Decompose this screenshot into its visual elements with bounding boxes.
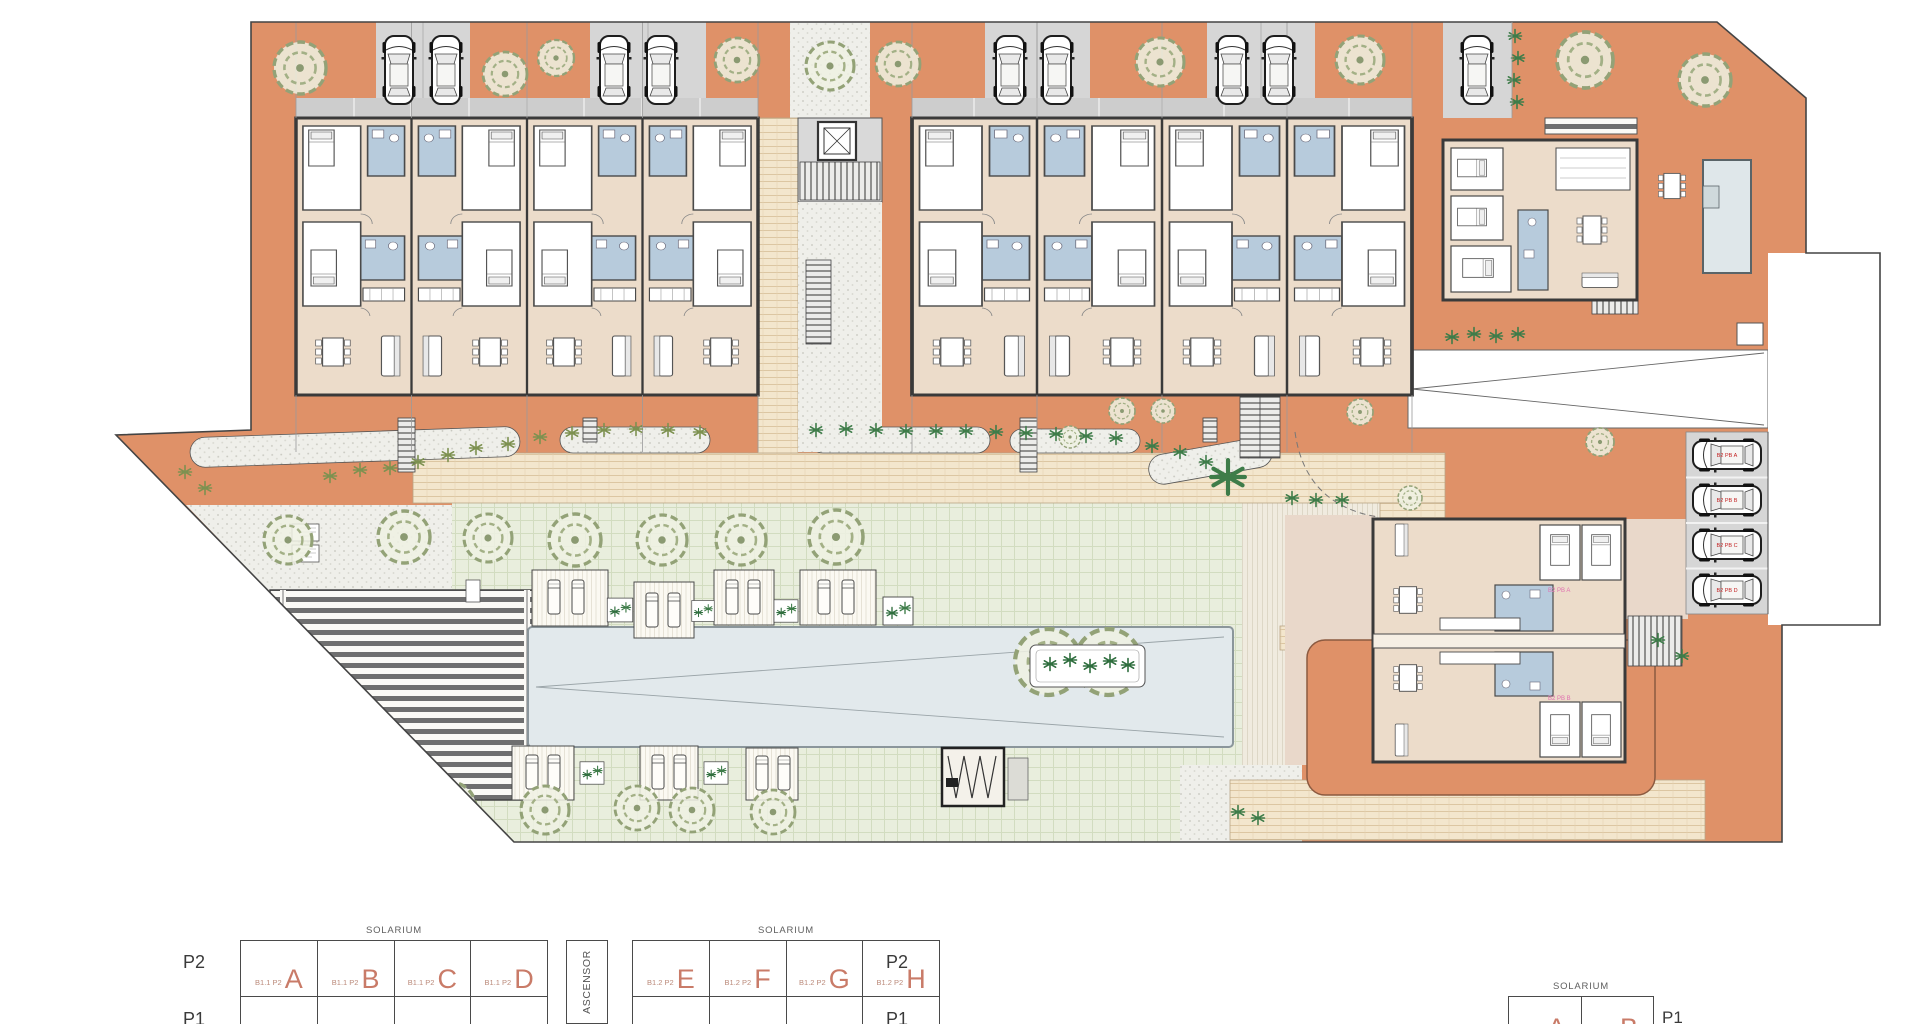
building-b2: B2 PB A B2 PB B	[1373, 519, 1625, 762]
unit-cell: B1.1 P2B	[317, 941, 394, 996]
car-icon	[1262, 36, 1297, 104]
car-icon	[429, 36, 464, 104]
unit-cell: B1.1 P2C	[394, 941, 471, 996]
site-plan-drawing: B2 PB A B2 PB B	[0, 0, 1920, 1024]
parking-stall-label: B2 PB D	[1716, 588, 1737, 594]
unit-schedule-b1-1: SOLARIUM B1.1 P2A B1.1 P2B B1.1 P2C B1.1…	[240, 940, 548, 1024]
parking-stall-label: B2 PB C	[1716, 543, 1737, 549]
garage-ramp	[1408, 350, 1768, 428]
unit-tag: B2 PB A	[1548, 588, 1570, 594]
roadside-strip	[1768, 253, 1880, 625]
unit-cell: B1.1 P1A	[241, 997, 317, 1024]
stair-lift-core	[798, 118, 882, 452]
unit-cell: B2 P1A	[1509, 997, 1581, 1024]
ascensor-label: ASCENSOR	[581, 950, 593, 1014]
unit-cell: B1.2 P1E	[633, 997, 709, 1024]
car-icon	[597, 36, 632, 104]
unit-tag: B2 PB B	[1548, 696, 1571, 702]
unit-cell: B1.2 P1G	[786, 997, 863, 1024]
car-icon	[1460, 36, 1495, 104]
schedule-row-p2: B1.1 P2A B1.1 P2B B1.1 P2C B1.1 P2D	[240, 940, 548, 997]
schedule-row-p2: B1.2 P2E B1.2 P2F B1.2 P2G B1.2 P2H	[632, 940, 940, 997]
floor-label-p2-left: P2	[183, 952, 205, 973]
unit-cell: B1.2 P1H	[862, 997, 939, 1024]
apartment-block-b1-1	[296, 118, 758, 395]
floor-label-p1-mini: P1	[1662, 1008, 1683, 1024]
car-icon	[382, 36, 417, 104]
solarium-label: SOLARIUM	[240, 925, 548, 936]
car-icon	[644, 36, 679, 104]
parking-stall-label: B2 PB B	[1717, 498, 1738, 504]
parking-stall-label: B2 PB A	[1717, 453, 1738, 459]
apartment-block-b1-2	[912, 118, 1412, 395]
unit-cell: B1.2 P2G	[786, 941, 863, 996]
unit-cell: B1.2 P2E	[633, 941, 709, 996]
unit-cell: B1.1 P1B	[317, 997, 394, 1024]
schedule-row-p1: B2 P1A B2 P1B	[1508, 996, 1654, 1024]
schedule-row-p1: B1.1 P1A B1.1 P1B B1.1 P1C B1.1 P1D	[240, 997, 548, 1024]
unit-cell: B1.2 P2F	[709, 941, 786, 996]
unit-cell: B1.1 P1C	[394, 997, 471, 1024]
elevator-schedule-box: ASCENSOR	[566, 940, 608, 1024]
floor-label-p1-left: P1	[183, 1009, 205, 1024]
solarium-label: SOLARIUM	[1508, 981, 1654, 992]
unit-cell: B2 P1B	[1581, 997, 1654, 1024]
unit-cell: B1.1 P1D	[470, 997, 547, 1024]
schedule-row-p1: B1.2 P1E B1.2 P1F B1.2 P1G B1.2 P1H	[632, 997, 940, 1024]
pergola	[270, 590, 540, 800]
car-icon	[1040, 36, 1075, 104]
site-plan-page: B2 PB A B2 PB B	[0, 0, 1920, 1024]
unit-schedule-b2: SOLARIUM B2 P1A B2 P1B	[1508, 996, 1654, 1024]
unit-cell: B1.1 P2D	[470, 941, 547, 996]
solarium-label: SOLARIUM	[632, 925, 940, 936]
unit-schedule-b1-2: SOLARIUM B1.2 P2E B1.2 P2F B1.2 P2G B1.2…	[632, 940, 940, 1024]
unit-cell: B1.2 P1F	[709, 997, 786, 1024]
unit-cell: B1.1 P2A	[241, 941, 317, 996]
unit-cell: B1.2 P2H	[862, 941, 939, 996]
car-icon	[993, 36, 1028, 104]
car-icon	[1215, 36, 1250, 104]
